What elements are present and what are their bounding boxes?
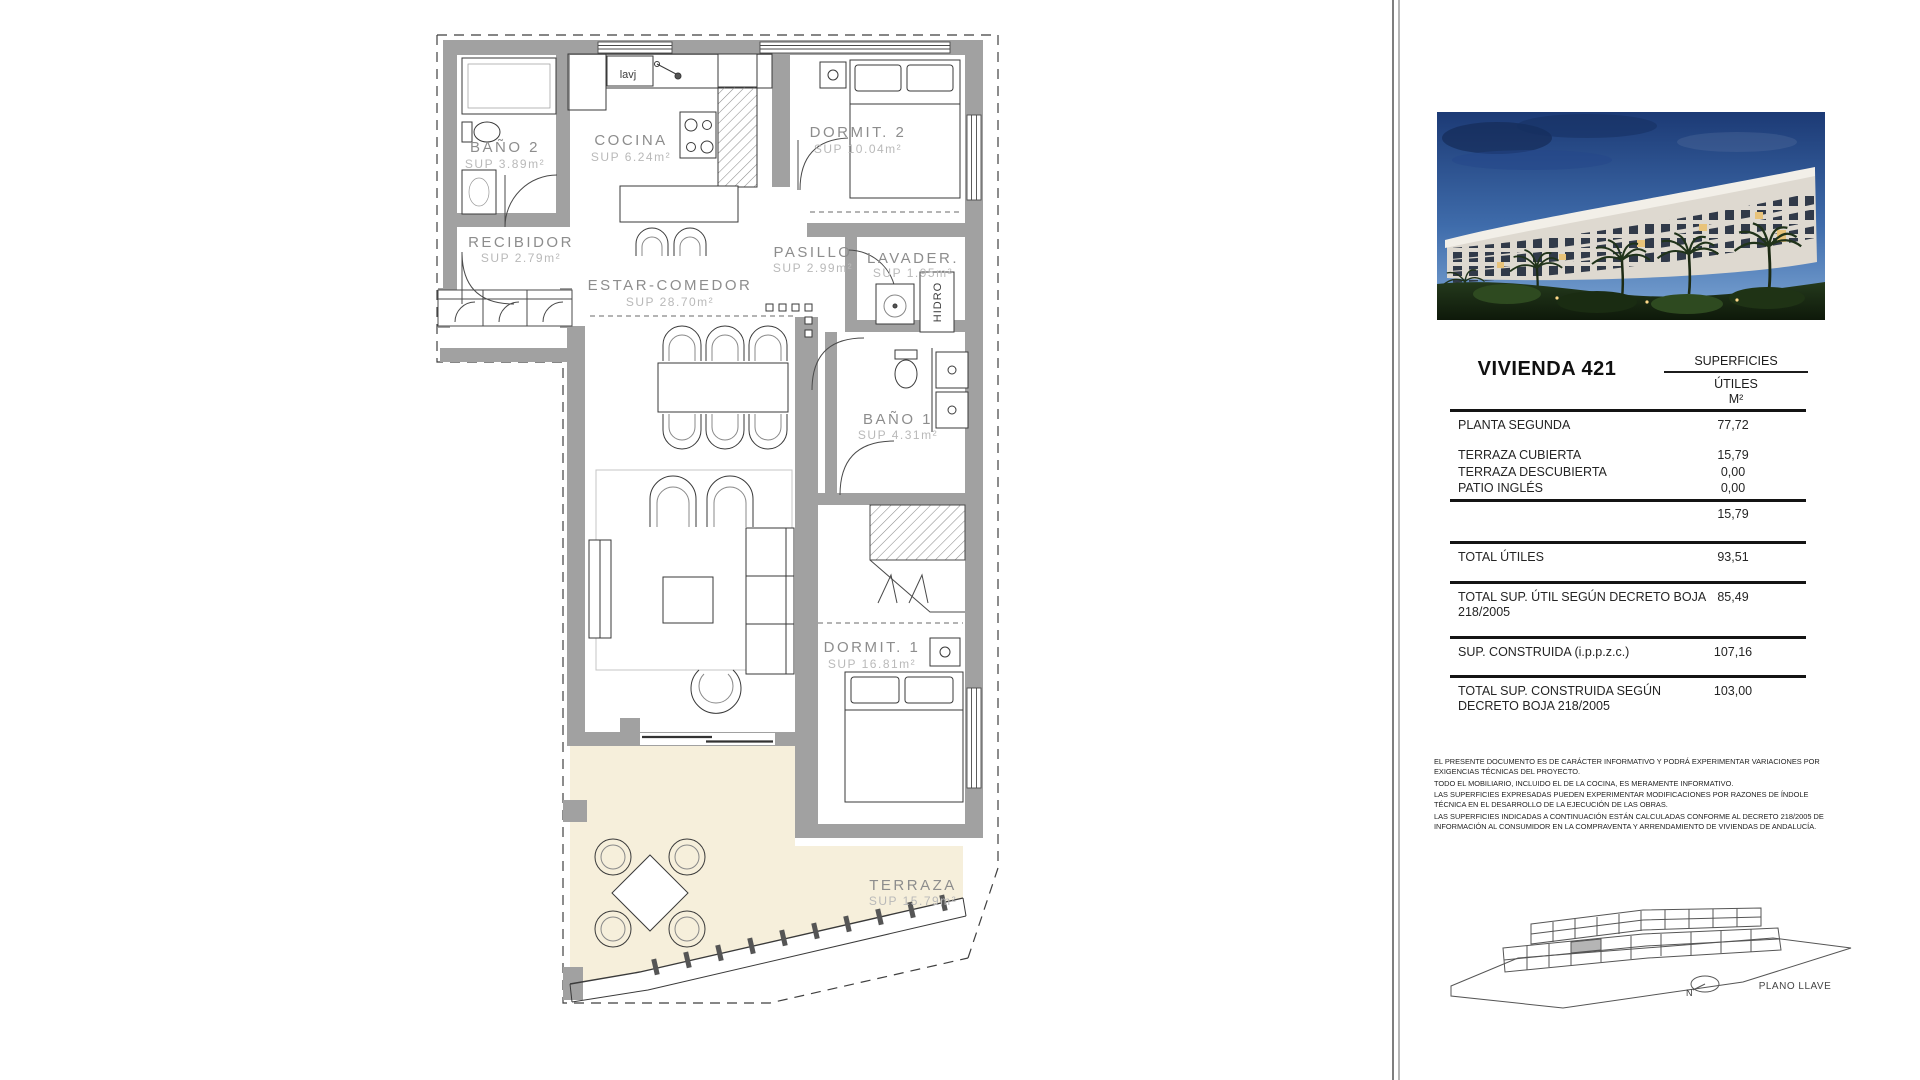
room-sup-cocina: SUP 6.24m² — [591, 150, 671, 164]
disclaimer-line: LAS SUPERFICIES EXPRESADAS PUEDEN EXPERI… — [1434, 790, 1832, 811]
table-row-value: 15,79 — [1683, 448, 1783, 462]
floor-plan: BAÑO 2 SUP 3.89m² COCINA SUP 6.24m² DORM… — [0, 0, 1396, 1080]
table-rule — [1450, 581, 1806, 584]
room-sup-lavadero: SUP 1.95m² — [873, 266, 953, 280]
room-label-pasillo: PASILLO — [774, 244, 853, 261]
table-row-value: 0,00 — [1683, 465, 1783, 479]
disclaimer-line: TODO EL MOBILIARIO, INCLUIDO EL DE LA CO… — [1434, 779, 1832, 789]
hidro-label: HIDRO — [932, 282, 944, 322]
room-sup-dormit1: SUP 16.81m² — [828, 657, 916, 671]
room-sup-bano1: SUP 4.31m² — [858, 428, 938, 442]
key-plan-unit-highlight — [1571, 939, 1601, 953]
room-label-cocina: COCINA — [594, 132, 667, 149]
table-rule — [1450, 541, 1806, 544]
room-sup-estar: SUP 28.70m² — [626, 295, 714, 309]
table-row-value: 107,16 — [1683, 645, 1783, 659]
table-row-label: TERRAZA CUBIERTA — [1458, 448, 1720, 463]
table-rule — [1450, 409, 1806, 412]
table-col-sub-m2: M² — [1664, 392, 1808, 406]
table-row-label: TOTAL SUP. CONSTRUIDA SEGÚN DECRETO BOJA… — [1458, 684, 1713, 715]
table-row-label: TOTAL ÚTILES — [1458, 550, 1720, 565]
table-rule — [1450, 675, 1806, 678]
table-row-value: 77,72 — [1683, 418, 1783, 432]
room-sup-terraza: SUP 15.79m² — [869, 894, 957, 908]
key-plan: N PLANO LLAVE — [1443, 886, 1863, 1026]
room-label-dormit1: DORMIT. 1 — [824, 639, 921, 656]
table-row-label: PATIO INGLÉS — [1458, 481, 1720, 496]
bay-window — [438, 290, 572, 326]
room-label-dormit2: DORMIT. 2 — [810, 124, 907, 141]
room-sup-bano2: SUP 3.89m² — [465, 157, 545, 171]
key-plan-label: PLANO LLAVE — [1759, 981, 1832, 992]
plan-sheet: { "plan": { "rooms": [ {"id":"bano2", "n… — [0, 0, 1920, 1080]
table-col-sub-utiles: ÚTILES — [1664, 377, 1808, 391]
table-row-value: 103,00 — [1683, 684, 1783, 698]
room-sup-dormit2: SUP 10.04m² — [814, 142, 902, 156]
table-rule — [1450, 499, 1806, 502]
room-sup-pasillo: SUP 2.99m² — [773, 261, 853, 275]
room-label-terraza: TERRAZA — [869, 877, 957, 894]
unit-title: VIVIENDA 421 — [1452, 358, 1642, 381]
room-label-estar: ESTAR-COMEDOR — [588, 277, 753, 294]
wardrobe-hatched — [870, 505, 965, 612]
table-row-label: TERRAZA DESCUBIERTA — [1458, 465, 1720, 480]
compass-north-label: N — [1686, 988, 1693, 998]
room-label-bano1: BAÑO 1 — [863, 411, 933, 428]
table-row-label: TOTAL SUP. ÚTIL SEGÚN DECRETO BOJA 218/2… — [1458, 590, 1713, 621]
table-row-value: 85,49 — [1683, 590, 1783, 604]
table-subtotal-value: 15,79 — [1683, 507, 1783, 521]
table-row-label: PLANTA SEGUNDA — [1458, 418, 1720, 433]
sink-label: lavj — [620, 69, 637, 81]
room-label-bano2: BAÑO 2 — [470, 139, 540, 156]
building-photo — [1437, 112, 1825, 320]
table-row-label: SUP. CONSTRUIDA (i.p.p.z.c.) — [1458, 645, 1720, 660]
sheet-divider-line-2 — [1398, 0, 1400, 1080]
terrace-furniture — [595, 839, 705, 947]
sheet-divider-line — [1392, 0, 1394, 1080]
disclaimer-line: LAS SUPERFICIES INDICADAS A CONTINUACIÓN… — [1434, 812, 1832, 833]
room-label-recibidor: RECIBIDOR — [468, 234, 574, 251]
disclaimer-line: EL PRESENTE DOCUMENTO ES DE CARÁCTER INF… — [1434, 757, 1832, 778]
table-rule — [1450, 636, 1806, 639]
room-sup-recibidor: SUP 2.79m² — [481, 251, 561, 265]
room-label-lavadero: LAVADER. — [867, 250, 959, 267]
table-row-value: 93,51 — [1683, 550, 1783, 564]
table-row-value: 0,00 — [1683, 481, 1783, 495]
living-furniture — [589, 304, 812, 713]
table-col-header-underline — [1664, 371, 1808, 373]
bathroom2-fixtures — [462, 58, 556, 214]
table-col-header: SUPERFICIES — [1664, 354, 1808, 368]
sliding-door — [640, 733, 775, 745]
legal-disclaimer: EL PRESENTE DOCUMENTO ES DE CARÁCTER INF… — [1434, 757, 1832, 834]
